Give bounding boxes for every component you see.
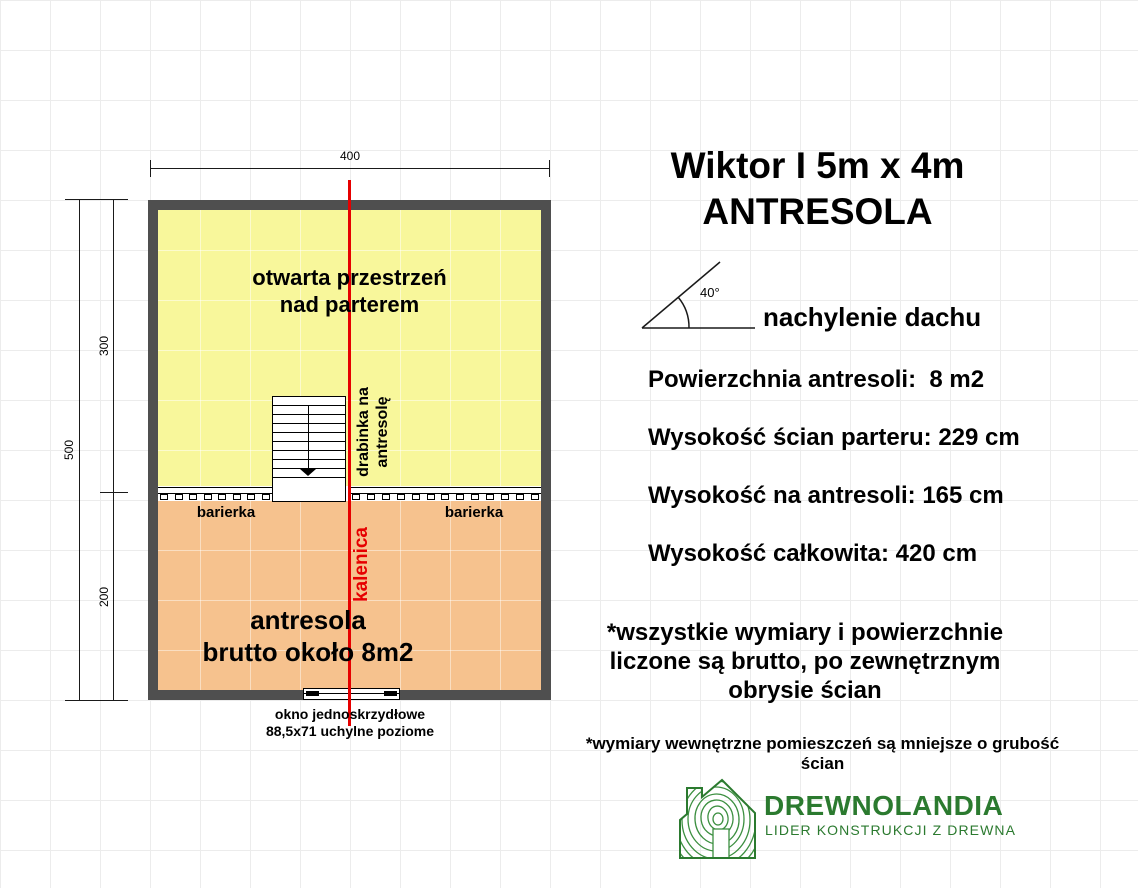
railing-right [351,487,541,494]
page-title: Wiktor I 5m x 4m ANTRESOLA [620,143,1015,235]
dim-label-400: 400 [300,149,400,163]
window-symbol [303,688,400,700]
ladder-label-line2: antresolę [373,380,392,484]
window-jamb-left [306,691,319,696]
dim-label-300: 300 [97,326,111,366]
drewnolandia-house-icon [676,777,760,863]
spec-total-height: Wysokość całkowita: 420 cm [648,540,977,568]
brand-tagline: LIDER KONSTRUKCJI Z DREWNA [765,822,1016,838]
brand-name: DREWNOLANDIA [764,790,1003,822]
window-label: okno jednoskrzydłowe 88,5x71 uchylne poz… [240,706,460,740]
dim-tick-left-top [65,199,128,200]
window-label-line1: okno jednoskrzydłowe [240,706,460,723]
spec-mezzanine-height: Wysokość na antresoli: 165 cm [648,482,1004,510]
ladder-symbol [272,396,346,502]
spec-ground-wall-height: Wysokość ścian parteru: 229 cm [648,424,1020,452]
barrier-label-left: barierka [176,504,276,521]
open-space-label-line1: otwarta przestrzeń [158,264,541,291]
mezzanine-label-line1: antresola [148,604,468,636]
page-title-line2: ANTRESOLA [620,189,1015,235]
dim-tick-left-mid [100,492,128,493]
page: otwarta przestrzeń nad parterem drabinka… [0,0,1138,888]
note-primary-line1: *wszystkie wymiary i powierzchnie [590,618,1020,647]
ladder-rungs [273,397,345,480]
spec-mezzanine-area: Powierzchnia antresoli: 8 m2 [648,366,984,394]
mezzanine-label: antresola brutto około 8m2 [148,604,468,668]
railing-posts-left [160,494,270,501]
dim-tick-top-right [549,160,550,177]
note-primary: *wszystkie wymiary i powierzchnie liczon… [590,618,1020,705]
dim-label-200: 200 [97,577,111,617]
ridge-label: kalenica [351,534,373,602]
page-title-line1: Wiktor I 5m x 4m [620,143,1015,189]
roof-pitch-label: nachylenie dachu [763,302,981,333]
roof-pitch-icon [630,252,765,337]
barrier-label-right: barierka [424,504,524,521]
open-space-label-line2: nad parterem [158,291,541,318]
note-primary-line3: obrysie ścian [590,676,1020,705]
ladder-axis-line [308,405,309,469]
dim-tick-left-bottom [65,700,128,701]
ladder-direction-arrow-icon [300,469,316,476]
dim-tick-top-left [150,160,151,177]
note-primary-line2: liczone są brutto, po zewnętrznym [590,647,1020,676]
railing-posts-right [352,494,539,501]
window-jamb-right [384,691,397,696]
dim-line-300-200 [113,199,114,701]
dim-label-500: 500 [62,430,76,470]
ladder-label: drabinka na antresolę [354,380,392,484]
open-space-label: otwarta przestrzeń nad parterem [158,264,541,318]
dim-line-500 [79,199,80,701]
railing-left [158,487,272,494]
note-secondary: *wymiary wewnętrzne pomieszczeń są mniej… [575,734,1070,774]
mezzanine-label-line2: brutto około 8m2 [148,636,468,668]
dim-line-top [150,168,550,169]
ladder-label-line1: drabinka na [354,380,373,484]
window-label-line2: 88,5x71 uchylne poziome [240,723,460,740]
